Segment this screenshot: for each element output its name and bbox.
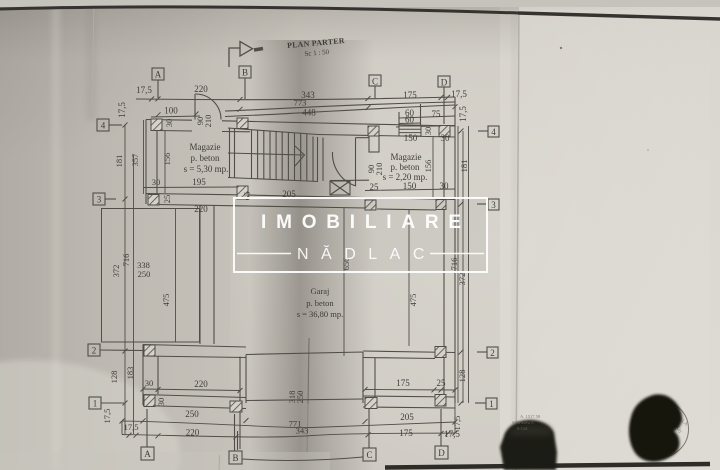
svg-text:60: 60 [405, 115, 415, 125]
svg-text:17,5: 17,5 [124, 422, 139, 432]
svg-text:150: 150 [404, 133, 418, 143]
svg-text:C: C [372, 77, 378, 87]
svg-text:1: 1 [489, 399, 494, 409]
svg-text:220: 220 [194, 379, 208, 389]
svg-text:250: 250 [185, 409, 199, 419]
svg-text:175: 175 [396, 378, 410, 388]
svg-text:17,5: 17,5 [117, 102, 127, 118]
svg-text:220: 220 [186, 428, 200, 438]
svg-text:372: 372 [457, 273, 467, 286]
svg-text:30: 30 [152, 177, 161, 187]
svg-text:175: 175 [403, 90, 417, 100]
svg-text:175: 175 [399, 428, 413, 438]
svg-text:343: 343 [296, 426, 309, 436]
svg-text:17,5: 17,5 [458, 106, 468, 122]
svg-text:372: 372 [111, 265, 121, 278]
svg-text:100: 100 [164, 106, 178, 116]
svg-text:716: 716 [121, 254, 131, 267]
svg-text:475: 475 [161, 294, 171, 307]
svg-text:30: 30 [423, 127, 433, 136]
svg-text:3: 3 [97, 195, 102, 205]
svg-text:128: 128 [457, 370, 467, 383]
svg-text:773: 773 [294, 98, 307, 108]
svg-text:A: A [155, 70, 162, 80]
svg-text:30: 30 [164, 119, 174, 128]
svg-text:128: 128 [109, 371, 119, 384]
svg-text:475: 475 [408, 294, 418, 307]
svg-text:s = 5,30 mp.: s = 5,30 mp. [184, 164, 229, 174]
svg-text:3: 3 [491, 200, 496, 210]
svg-text:150: 150 [403, 181, 417, 191]
svg-text:220: 220 [194, 204, 208, 214]
svg-text:210: 210 [203, 115, 213, 128]
svg-text:30: 30 [441, 133, 451, 143]
svg-text:25: 25 [437, 378, 447, 388]
svg-text:D: D [441, 78, 448, 88]
svg-text:SOS asdwA: SOS asdwA [512, 420, 535, 425]
svg-text:Magazie: Magazie [391, 152, 422, 162]
svg-text:250: 250 [138, 269, 151, 279]
svg-text:IMOBILIARE: IMOBILIARE [261, 212, 471, 233]
svg-text:210: 210 [374, 163, 384, 176]
svg-text:Magazie: Magazie [190, 142, 221, 152]
svg-text:B: B [232, 453, 238, 463]
svg-text:p. beton: p. beton [391, 162, 420, 172]
svg-text:156: 156 [162, 153, 172, 166]
svg-text:4: 4 [101, 121, 106, 131]
svg-text:4: 4 [491, 127, 496, 137]
svg-text:p. beton: p. beton [306, 298, 334, 308]
svg-text:181: 181 [114, 155, 124, 168]
svg-text:250: 250 [295, 391, 305, 404]
svg-text:17,5: 17,5 [451, 89, 467, 99]
svg-text:s = 36,80 mp.: s = 36,80 mp. [297, 309, 344, 319]
svg-text:17,5: 17,5 [136, 85, 152, 95]
svg-text:B: B [242, 68, 248, 78]
svg-text:30: 30 [156, 398, 166, 407]
svg-text:30: 30 [145, 378, 154, 388]
svg-text:220: 220 [194, 84, 208, 94]
svg-text:1: 1 [93, 399, 98, 409]
svg-text:17,5: 17,5 [102, 409, 112, 424]
svg-text:Garaj: Garaj [311, 286, 330, 296]
svg-text:p. beton: p. beton [191, 153, 220, 163]
svg-text:357: 357 [130, 154, 140, 167]
svg-text:NĂDLAC: NĂDLAC [297, 244, 437, 263]
svg-text:183: 183 [125, 367, 135, 380]
svg-text:2: 2 [92, 346, 97, 356]
svg-text:30: 30 [440, 181, 450, 191]
svg-text:205: 205 [400, 412, 414, 422]
svg-text:D: D [438, 448, 445, 458]
svg-text:17,5: 17,5 [444, 429, 460, 439]
svg-text:2: 2 [490, 348, 495, 358]
svg-text:195: 195 [192, 177, 206, 187]
svg-text:181: 181 [459, 160, 469, 173]
svg-text:S.12d: S.12d [517, 426, 528, 431]
svg-text:75: 75 [432, 109, 442, 119]
svg-text:A: A [144, 449, 151, 459]
svg-text:A. 1517 58: A. 1517 58 [520, 414, 541, 419]
svg-text:156: 156 [423, 160, 433, 173]
svg-text:25: 25 [370, 182, 380, 192]
svg-text:C: C [366, 450, 372, 460]
svg-text:25: 25 [162, 195, 172, 204]
svg-text:448: 448 [302, 108, 316, 118]
